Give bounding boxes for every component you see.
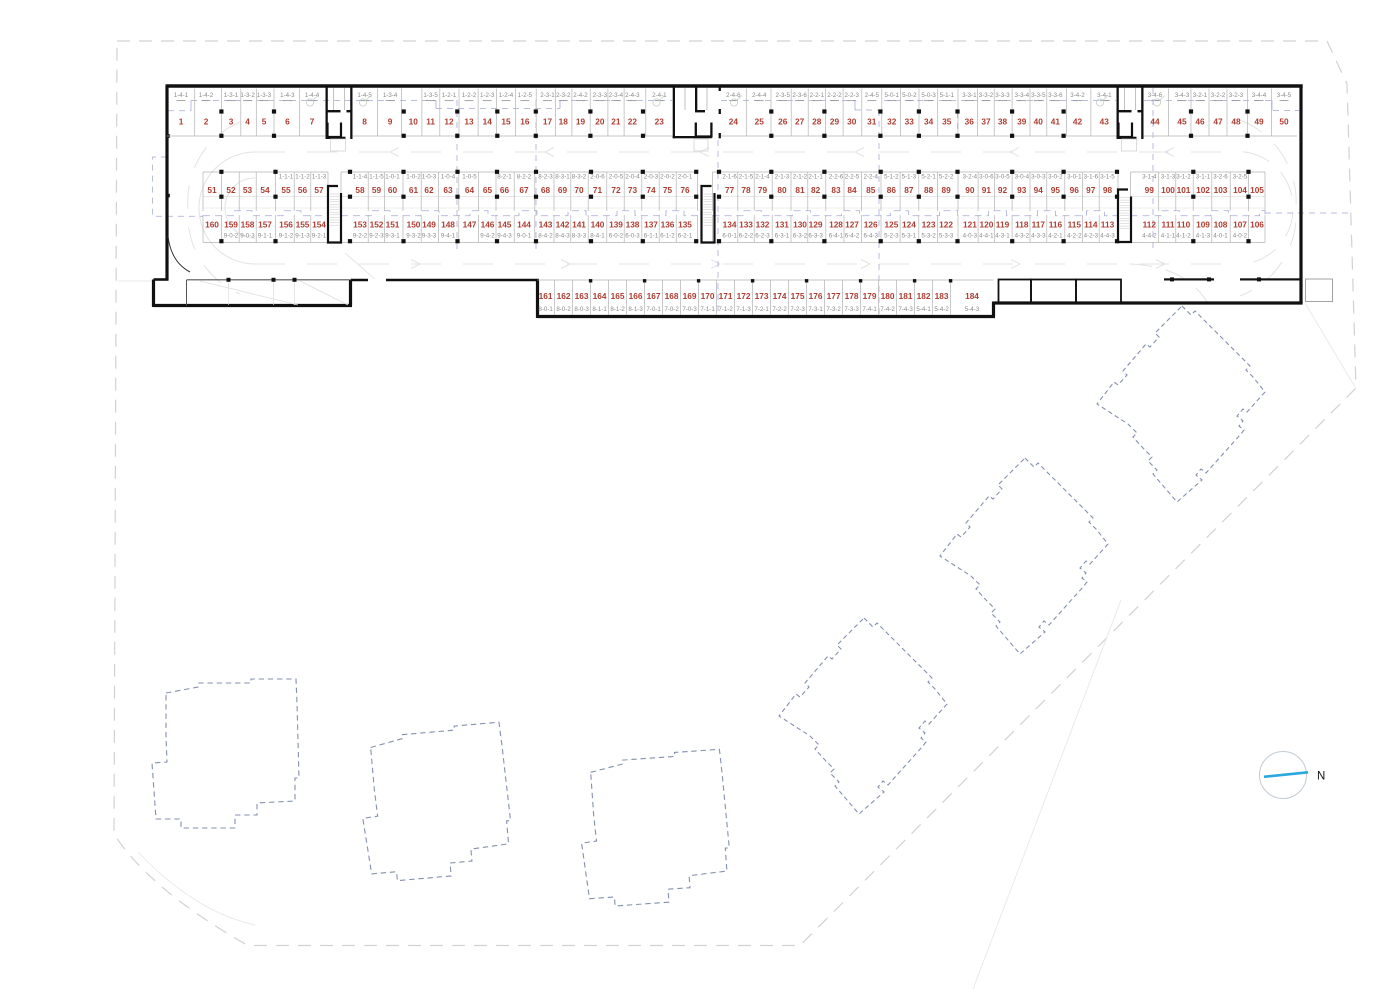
- svg-text:2-1-1: 2-1-1: [808, 174, 823, 181]
- svg-text:1-3-2: 1-3-2: [240, 92, 255, 99]
- svg-text:157: 157: [258, 219, 272, 229]
- svg-text:125: 125: [884, 219, 898, 229]
- svg-text:4-3-2: 4-3-2: [1015, 233, 1030, 240]
- svg-text:146: 146: [481, 219, 495, 229]
- svg-text:80: 80: [777, 185, 787, 195]
- svg-text:137: 137: [644, 219, 658, 229]
- svg-text:176: 176: [809, 291, 823, 301]
- svg-text:159: 159: [224, 219, 238, 229]
- svg-text:3-1-1: 3-1-1: [1196, 174, 1211, 181]
- svg-text:160: 160: [205, 219, 219, 229]
- svg-text:145: 145: [498, 219, 512, 229]
- svg-text:1-2-2: 1-2-2: [462, 92, 477, 99]
- svg-text:79: 79: [758, 185, 768, 195]
- svg-text:11: 11: [426, 117, 435, 127]
- svg-text:1-2-4: 1-2-4: [499, 92, 514, 99]
- svg-text:96: 96: [1070, 185, 1080, 195]
- svg-text:3-1-6: 3-1-6: [1084, 174, 1099, 181]
- svg-text:174: 174: [773, 291, 787, 301]
- svg-text:180: 180: [881, 291, 895, 301]
- svg-text:1-1-3: 1-1-3: [312, 174, 327, 181]
- svg-text:5-2-3: 5-2-3: [884, 233, 899, 240]
- svg-text:7-4-2: 7-4-2: [880, 306, 895, 313]
- svg-text:3-0-4: 3-0-4: [1015, 174, 1030, 181]
- svg-text:14: 14: [483, 117, 493, 127]
- svg-text:4-0-1: 4-0-1: [1213, 233, 1228, 240]
- svg-text:141: 141: [572, 219, 586, 229]
- svg-text:6: 6: [285, 117, 290, 127]
- svg-text:54: 54: [260, 185, 270, 195]
- svg-text:152: 152: [370, 219, 384, 229]
- svg-text:58: 58: [355, 185, 365, 195]
- svg-text:50: 50: [1279, 117, 1289, 127]
- svg-text:143: 143: [539, 219, 553, 229]
- svg-text:2-0-2: 2-0-2: [660, 174, 675, 181]
- svg-text:4-4-1: 4-4-1: [979, 233, 994, 240]
- svg-text:90: 90: [965, 185, 975, 195]
- svg-text:40: 40: [1034, 117, 1044, 127]
- svg-text:7-0-1: 7-0-1: [646, 306, 661, 313]
- svg-text:8-4-2: 8-4-2: [538, 233, 553, 240]
- svg-text:9-2-1: 9-2-1: [312, 233, 327, 240]
- svg-text:8-1-3: 8-1-3: [628, 306, 643, 313]
- svg-text:66: 66: [500, 185, 510, 195]
- svg-text:17: 17: [543, 117, 553, 127]
- svg-text:49: 49: [1254, 117, 1264, 127]
- svg-text:109: 109: [1196, 219, 1210, 229]
- svg-text:23: 23: [655, 117, 665, 127]
- svg-text:2-4-2: 2-4-2: [573, 92, 588, 99]
- svg-text:124: 124: [902, 219, 916, 229]
- svg-text:9-2-3: 9-2-3: [369, 233, 384, 240]
- svg-text:169: 169: [683, 291, 697, 301]
- svg-text:7-1-1: 7-1-1: [700, 306, 715, 313]
- svg-text:171: 171: [719, 291, 733, 301]
- svg-text:2-4-4: 2-4-4: [752, 92, 767, 99]
- svg-text:2-1-3: 2-1-3: [775, 174, 790, 181]
- svg-text:6-0-2: 6-0-2: [609, 233, 624, 240]
- svg-text:139: 139: [609, 219, 623, 229]
- svg-text:165: 165: [611, 291, 625, 301]
- svg-text:1-1-1: 1-1-1: [279, 174, 294, 181]
- svg-text:73: 73: [628, 185, 638, 195]
- svg-text:36: 36: [965, 117, 975, 127]
- svg-text:9-4-3: 9-4-3: [497, 233, 512, 240]
- svg-text:34: 34: [924, 117, 934, 127]
- svg-text:29: 29: [830, 117, 840, 127]
- svg-text:41: 41: [1051, 117, 1061, 127]
- svg-text:4-3-1: 4-3-1: [995, 233, 1010, 240]
- svg-text:151: 151: [386, 219, 400, 229]
- svg-text:88: 88: [924, 185, 934, 195]
- svg-text:57: 57: [314, 185, 324, 195]
- svg-text:9-2-2: 9-2-2: [353, 233, 368, 240]
- svg-text:4-1-2: 4-1-2: [1176, 233, 1191, 240]
- svg-text:104: 104: [1233, 185, 1247, 195]
- svg-text:155: 155: [296, 219, 310, 229]
- svg-text:97: 97: [1086, 185, 1096, 195]
- svg-text:30: 30: [847, 117, 857, 127]
- svg-text:154: 154: [312, 219, 326, 229]
- svg-text:74: 74: [646, 185, 656, 195]
- svg-text:153: 153: [353, 219, 367, 229]
- svg-text:3-2-6: 3-2-6: [1213, 174, 1228, 181]
- svg-text:8-4-3: 8-4-3: [555, 233, 570, 240]
- svg-text:4-1-1: 4-1-1: [1161, 233, 1176, 240]
- svg-text:78: 78: [741, 185, 751, 195]
- svg-text:8-0-3: 8-0-3: [574, 306, 589, 313]
- svg-text:1-3-4: 1-3-4: [383, 92, 398, 99]
- svg-text:147: 147: [463, 219, 477, 229]
- svg-text:91: 91: [982, 185, 992, 195]
- svg-text:84: 84: [847, 185, 857, 195]
- svg-text:161: 161: [539, 291, 553, 301]
- svg-text:93: 93: [1017, 185, 1027, 195]
- svg-text:47: 47: [1213, 117, 1223, 127]
- svg-text:1: 1: [179, 117, 184, 127]
- svg-text:127: 127: [845, 219, 859, 229]
- svg-text:1-2-3: 1-2-3: [480, 92, 495, 99]
- svg-text:4-4-3: 4-4-3: [1100, 233, 1115, 240]
- svg-text:7-4-1: 7-4-1: [862, 306, 877, 313]
- svg-text:3-1-2: 3-1-2: [1176, 174, 1191, 181]
- svg-text:18: 18: [559, 117, 569, 127]
- svg-text:3-4-2: 3-4-2: [1070, 92, 1085, 99]
- svg-text:2-2-4: 2-2-4: [863, 174, 878, 181]
- svg-text:2-2-1: 2-2-1: [810, 92, 825, 99]
- svg-text:6-2-1: 6-2-1: [678, 233, 693, 240]
- svg-text:179: 179: [863, 291, 877, 301]
- svg-text:5: 5: [262, 117, 267, 127]
- svg-text:1-3-5: 1-3-5: [423, 92, 438, 99]
- svg-text:6-1-2: 6-1-2: [660, 233, 675, 240]
- svg-text:120: 120: [979, 219, 993, 229]
- svg-text:9-3-1: 9-3-1: [385, 233, 400, 240]
- svg-text:1-2-1: 1-2-1: [442, 92, 457, 99]
- svg-text:112: 112: [1143, 219, 1157, 229]
- svg-text:138: 138: [626, 219, 640, 229]
- svg-text:106: 106: [1250, 219, 1264, 229]
- svg-text:3-4-4: 3-4-4: [1252, 92, 1267, 99]
- svg-text:7-2-2: 7-2-2: [772, 306, 787, 313]
- svg-text:2-2-5: 2-2-5: [845, 174, 860, 181]
- svg-text:69: 69: [558, 185, 568, 195]
- svg-text:3-1-4: 3-1-4: [1142, 174, 1157, 181]
- svg-text:101: 101: [1177, 185, 1191, 195]
- svg-text:7-2-1: 7-2-1: [754, 306, 769, 313]
- svg-text:5-3-2: 5-3-2: [921, 233, 936, 240]
- svg-text:1-0-4: 1-0-4: [441, 174, 456, 181]
- svg-text:85: 85: [866, 185, 876, 195]
- svg-text:133: 133: [739, 219, 753, 229]
- svg-text:166: 166: [629, 291, 643, 301]
- svg-text:4-2-3: 4-2-3: [1084, 233, 1099, 240]
- svg-text:2-0-6: 2-0-6: [590, 174, 605, 181]
- svg-text:3-3-2: 3-3-2: [979, 92, 994, 99]
- svg-text:184: 184: [965, 291, 979, 301]
- svg-text:3-2-4: 3-2-4: [963, 174, 978, 181]
- svg-text:110: 110: [1177, 219, 1191, 229]
- svg-text:3-4-6: 3-4-6: [1148, 92, 1163, 99]
- svg-text:6-2-3: 6-2-3: [755, 233, 770, 240]
- svg-text:2-3-1: 2-3-1: [540, 92, 555, 99]
- svg-text:81: 81: [795, 185, 805, 195]
- svg-text:116: 116: [1049, 219, 1063, 229]
- svg-text:2-2-2: 2-2-2: [827, 92, 842, 99]
- svg-text:3-2-5: 3-2-5: [1233, 174, 1248, 181]
- svg-text:3-4-3: 3-4-3: [1175, 92, 1190, 99]
- svg-text:65: 65: [483, 185, 493, 195]
- svg-text:55: 55: [281, 185, 291, 195]
- svg-text:2-3-2: 2-3-2: [556, 92, 571, 99]
- svg-text:3-4-5: 3-4-5: [1277, 92, 1292, 99]
- svg-text:8-4-1: 8-4-1: [590, 233, 605, 240]
- svg-text:108: 108: [1214, 219, 1228, 229]
- svg-text:12: 12: [444, 117, 454, 127]
- svg-text:162: 162: [557, 291, 571, 301]
- svg-text:8-3-1: 8-3-1: [555, 174, 570, 181]
- svg-text:3-0-3: 3-0-3: [1031, 174, 1046, 181]
- svg-text:32: 32: [887, 117, 897, 127]
- svg-text:6-2-2: 6-2-2: [739, 233, 754, 240]
- svg-text:3-2-3: 3-2-3: [1229, 92, 1244, 99]
- svg-text:2-3-5: 2-3-5: [775, 92, 790, 99]
- svg-text:4-2-1: 4-2-1: [1048, 233, 1063, 240]
- svg-text:62: 62: [424, 185, 434, 195]
- svg-text:1-4-5: 1-4-5: [357, 92, 372, 99]
- svg-text:6-1-1: 6-1-1: [644, 233, 659, 240]
- svg-text:5-4-2: 5-4-2: [934, 306, 949, 313]
- svg-text:6-4-3: 6-4-3: [863, 233, 878, 240]
- svg-text:105: 105: [1250, 185, 1264, 195]
- svg-text:45: 45: [1177, 117, 1187, 127]
- svg-text:3-3-4: 3-3-4: [1015, 92, 1030, 99]
- svg-text:132: 132: [756, 219, 770, 229]
- svg-text:1-0-2: 1-0-2: [406, 174, 421, 181]
- svg-text:5-0-1: 5-0-1: [884, 92, 899, 99]
- svg-text:107: 107: [1233, 219, 1247, 229]
- svg-text:2-4-1: 2-4-1: [652, 92, 667, 99]
- svg-text:16: 16: [520, 117, 530, 127]
- svg-text:9-3-3: 9-3-3: [422, 233, 437, 240]
- svg-text:150: 150: [407, 219, 421, 229]
- svg-text:119: 119: [996, 219, 1010, 229]
- svg-text:9-1-2: 9-1-2: [279, 233, 294, 240]
- svg-text:2-0-5: 2-0-5: [609, 174, 624, 181]
- svg-text:87: 87: [904, 185, 914, 195]
- svg-text:118: 118: [1015, 219, 1029, 229]
- svg-text:5-1-3: 5-1-3: [902, 174, 917, 181]
- svg-text:5-1-2: 5-1-2: [884, 174, 899, 181]
- svg-text:175: 175: [791, 291, 805, 301]
- svg-text:173: 173: [755, 291, 769, 301]
- svg-text:100: 100: [1161, 185, 1175, 195]
- svg-text:9-4-1: 9-4-1: [441, 233, 456, 240]
- svg-text:7-4-3: 7-4-3: [898, 306, 913, 313]
- svg-text:149: 149: [422, 219, 436, 229]
- svg-text:82: 82: [811, 185, 821, 195]
- svg-text:123: 123: [922, 219, 936, 229]
- svg-text:4-4-2: 4-4-2: [1142, 233, 1157, 240]
- svg-text:68: 68: [541, 185, 551, 195]
- svg-text:8-1-2: 8-1-2: [610, 306, 625, 313]
- svg-text:52: 52: [226, 185, 236, 195]
- svg-text:177: 177: [827, 291, 841, 301]
- svg-text:6-3-1: 6-3-1: [775, 233, 790, 240]
- svg-text:9-0-1: 9-0-1: [517, 233, 532, 240]
- svg-text:3-0-1: 3-0-1: [1067, 174, 1082, 181]
- svg-text:9-0-3: 9-0-3: [240, 233, 255, 240]
- svg-text:163: 163: [575, 291, 589, 301]
- svg-text:5-0-2: 5-0-2: [902, 92, 917, 99]
- svg-text:158: 158: [241, 219, 255, 229]
- svg-text:1-4-1: 1-4-1: [174, 92, 189, 99]
- svg-text:8-3-2: 8-3-2: [572, 174, 587, 181]
- svg-text:2-1-6: 2-1-6: [722, 174, 737, 181]
- svg-text:2-1-5: 2-1-5: [739, 174, 754, 181]
- svg-text:94: 94: [1034, 185, 1044, 195]
- svg-text:7: 7: [310, 117, 315, 127]
- svg-text:1-3-3: 1-3-3: [257, 92, 272, 99]
- svg-text:92: 92: [998, 185, 1008, 195]
- svg-text:44: 44: [1150, 117, 1160, 127]
- svg-text:22: 22: [628, 117, 638, 127]
- svg-text:3-0-5: 3-0-5: [995, 174, 1010, 181]
- svg-text:5-1-1: 5-1-1: [940, 92, 955, 99]
- svg-text:8-3-3: 8-3-3: [572, 233, 587, 240]
- svg-text:1-0-1: 1-0-1: [385, 174, 400, 181]
- svg-text:N: N: [1317, 771, 1325, 783]
- svg-text:21: 21: [611, 117, 621, 127]
- svg-text:26: 26: [778, 117, 788, 127]
- svg-text:3-3-3: 3-3-3: [995, 92, 1010, 99]
- svg-text:8: 8: [362, 117, 367, 127]
- svg-text:20: 20: [595, 117, 605, 127]
- svg-text:7-3-1: 7-3-1: [808, 306, 823, 313]
- svg-text:19: 19: [576, 117, 586, 127]
- svg-text:170: 170: [701, 291, 715, 301]
- svg-text:8-2-1: 8-2-1: [497, 174, 512, 181]
- svg-text:39: 39: [1017, 117, 1027, 127]
- svg-text:1-4-3: 1-4-3: [280, 92, 295, 99]
- svg-text:25: 25: [755, 117, 765, 127]
- svg-text:4-1-3: 4-1-3: [1196, 233, 1211, 240]
- svg-text:1-0-3: 1-0-3: [422, 174, 437, 181]
- svg-text:6-0-1: 6-0-1: [722, 233, 737, 240]
- svg-text:3-1-5: 3-1-5: [1100, 174, 1115, 181]
- svg-text:144: 144: [517, 219, 531, 229]
- svg-text:13: 13: [464, 117, 474, 127]
- svg-text:1-1-4: 1-1-4: [353, 174, 368, 181]
- svg-text:9-3-2: 9-3-2: [406, 233, 421, 240]
- svg-text:2-3-6: 2-3-6: [792, 92, 807, 99]
- svg-text:2-4-3: 2-4-3: [625, 92, 640, 99]
- svg-text:7-3-3: 7-3-3: [844, 306, 859, 313]
- svg-text:64: 64: [465, 185, 475, 195]
- svg-text:4-2-2: 4-2-2: [1067, 233, 1082, 240]
- svg-text:4-0-3: 4-0-3: [963, 233, 978, 240]
- svg-text:83: 83: [831, 185, 841, 195]
- svg-text:9-1-1: 9-1-1: [258, 233, 273, 240]
- svg-text:178: 178: [845, 291, 859, 301]
- svg-text:59: 59: [372, 185, 382, 195]
- svg-text:102: 102: [1196, 185, 1210, 195]
- svg-text:1-0-5: 1-0-5: [462, 174, 477, 181]
- svg-text:15: 15: [501, 117, 511, 127]
- svg-text:5-3-1: 5-3-1: [902, 233, 917, 240]
- svg-text:5-4-1: 5-4-1: [916, 306, 931, 313]
- svg-text:86: 86: [887, 185, 897, 195]
- svg-text:77: 77: [725, 185, 735, 195]
- svg-text:2-0-1: 2-0-1: [678, 174, 693, 181]
- svg-text:6-3-2: 6-3-2: [793, 233, 808, 240]
- svg-text:37: 37: [981, 117, 991, 127]
- svg-text:98: 98: [1103, 185, 1113, 195]
- svg-text:3-1-3: 3-1-3: [1161, 174, 1176, 181]
- svg-text:8-2-2: 8-2-2: [517, 174, 532, 181]
- svg-text:35: 35: [942, 117, 952, 127]
- svg-text:9: 9: [388, 117, 393, 127]
- svg-text:3: 3: [229, 117, 234, 127]
- svg-text:5-4-3: 5-4-3: [965, 306, 980, 313]
- svg-text:2-2-3: 2-2-3: [844, 92, 859, 99]
- svg-text:72: 72: [611, 185, 621, 195]
- svg-text:71: 71: [593, 185, 603, 195]
- svg-text:148: 148: [441, 219, 455, 229]
- svg-text:3-0-2: 3-0-2: [1048, 174, 1063, 181]
- svg-text:7-0-2: 7-0-2: [664, 306, 679, 313]
- svg-text:172: 172: [737, 291, 751, 301]
- svg-text:48: 48: [1231, 117, 1241, 127]
- svg-text:99: 99: [1145, 185, 1155, 195]
- svg-text:135: 135: [678, 219, 692, 229]
- svg-text:2-3-4: 2-3-4: [609, 92, 624, 99]
- svg-text:60: 60: [388, 185, 398, 195]
- svg-text:63: 63: [443, 185, 453, 195]
- svg-text:38: 38: [998, 117, 1008, 127]
- svg-text:53: 53: [243, 185, 253, 195]
- svg-text:2-1-4: 2-1-4: [755, 174, 770, 181]
- svg-text:114: 114: [1084, 219, 1098, 229]
- svg-text:2-3-3: 2-3-3: [593, 92, 608, 99]
- svg-text:3-3-5: 3-3-5: [1031, 92, 1046, 99]
- svg-text:4: 4: [245, 117, 250, 127]
- svg-text:136: 136: [661, 219, 675, 229]
- svg-text:111: 111: [1162, 219, 1175, 229]
- svg-text:2-2-6: 2-2-6: [829, 174, 844, 181]
- svg-text:42: 42: [1073, 117, 1083, 127]
- svg-text:168: 168: [665, 291, 679, 301]
- svg-text:8-2-3: 8-2-3: [538, 174, 553, 181]
- svg-text:7-3-2: 7-3-2: [826, 306, 841, 313]
- svg-text:4-0-2: 4-0-2: [1233, 233, 1248, 240]
- svg-text:7-1-3: 7-1-3: [736, 306, 751, 313]
- svg-text:5-2-2: 5-2-2: [939, 174, 954, 181]
- svg-text:1-2-5: 1-2-5: [518, 92, 533, 99]
- svg-text:5-3-3: 5-3-3: [939, 233, 954, 240]
- svg-text:7-2-3: 7-2-3: [790, 306, 805, 313]
- svg-text:121: 121: [963, 219, 977, 229]
- svg-text:1-4-2: 1-4-2: [199, 92, 214, 99]
- svg-text:156: 156: [279, 219, 293, 229]
- svg-text:2-0-3: 2-0-3: [644, 174, 659, 181]
- svg-text:181: 181: [899, 291, 913, 301]
- svg-text:46: 46: [1195, 117, 1205, 127]
- svg-text:117: 117: [1032, 219, 1046, 229]
- svg-text:7-0-3: 7-0-3: [682, 306, 697, 313]
- svg-text:122: 122: [939, 219, 953, 229]
- svg-text:131: 131: [775, 219, 789, 229]
